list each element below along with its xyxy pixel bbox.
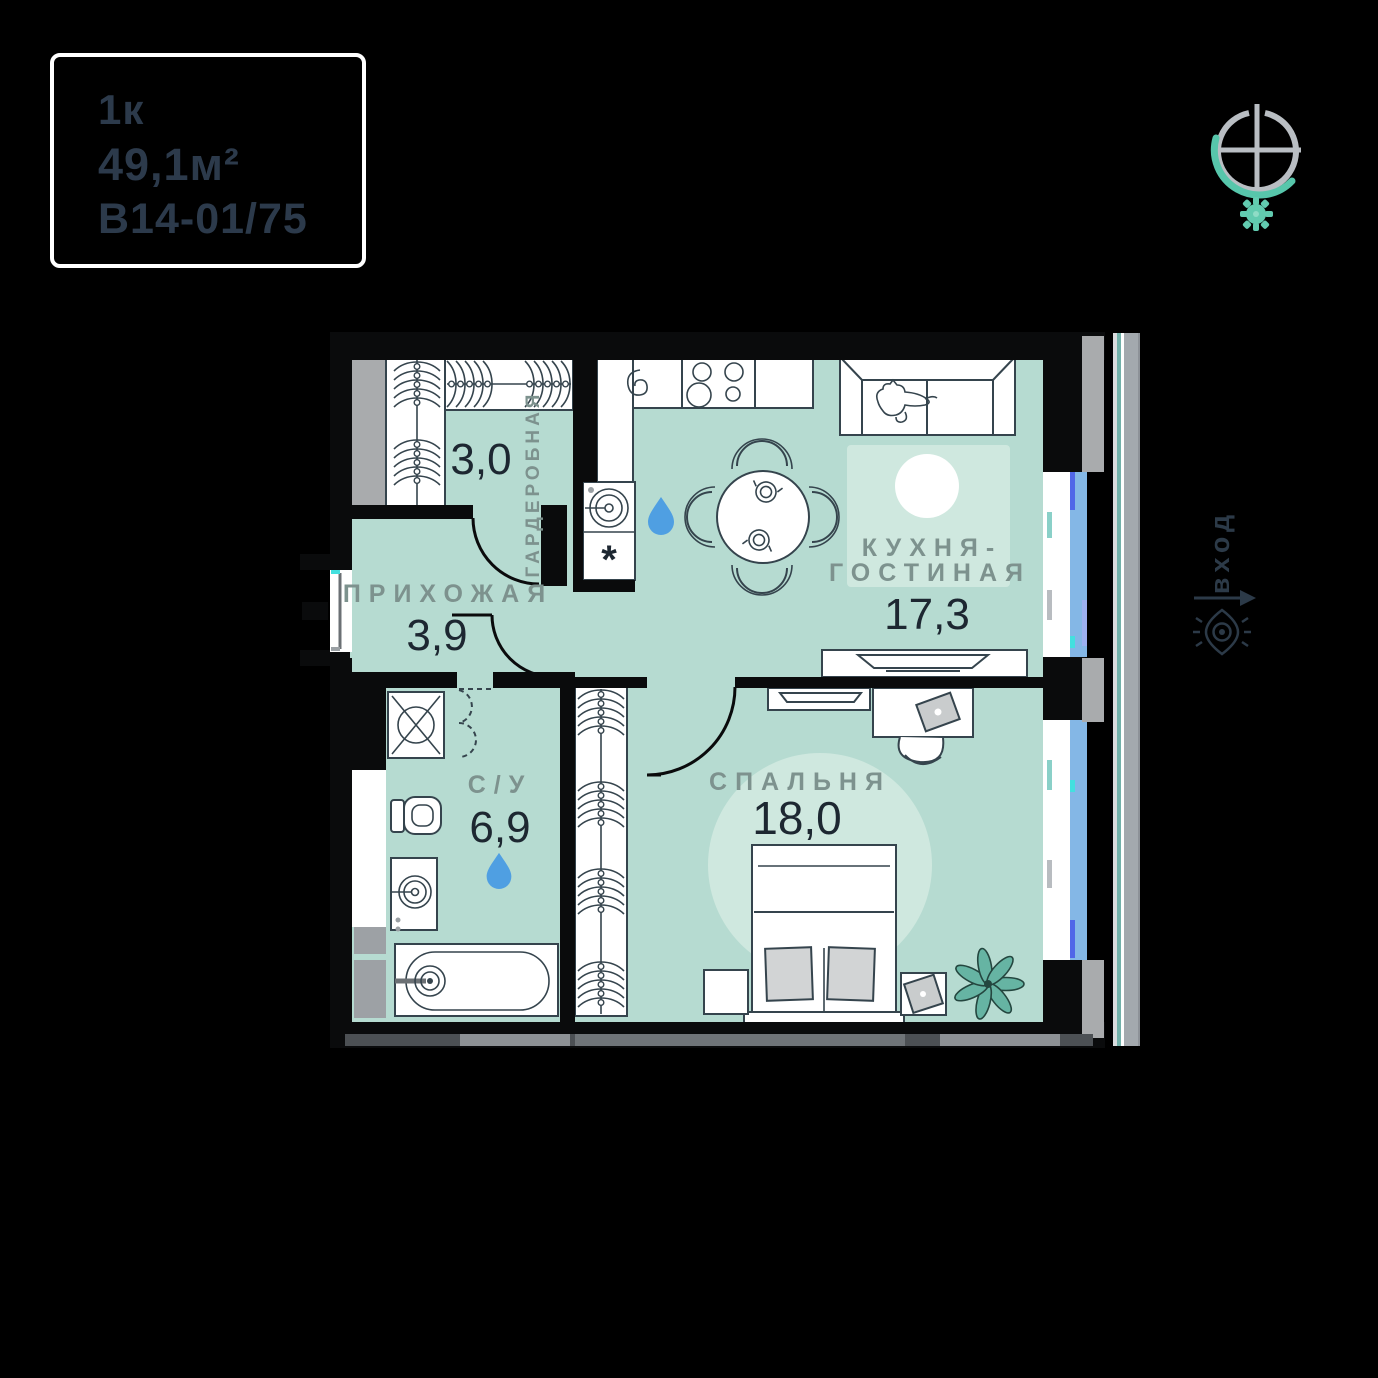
bathroom-left-column — [352, 688, 386, 1018]
floor-plan-page: 1к 49,1м² В14-01/75 — [0, 0, 1378, 1378]
washing-machine — [388, 692, 444, 758]
wardrobe-area: 3,0 — [450, 435, 511, 484]
kitchen-area: 17,3 — [884, 590, 970, 639]
bed — [744, 845, 904, 1024]
entrance-marker: вход — [1193, 510, 1256, 654]
sun-flower-icon — [1240, 197, 1273, 231]
bathtub — [395, 944, 558, 1016]
nightstand — [704, 970, 748, 1014]
bathroom-sink — [391, 858, 437, 932]
kitchen-label-2: ГОСТИНАЯ — [829, 559, 1031, 587]
floor-frame — [901, 973, 946, 1015]
pillow — [765, 947, 813, 1001]
pillow — [827, 947, 875, 1001]
dishwasher-mark: * — [601, 538, 617, 582]
bathroom-label: С/У — [468, 771, 533, 799]
entrance-label: вход — [1205, 510, 1235, 594]
sofa — [840, 357, 1015, 435]
window-kitchen — [1043, 472, 1087, 657]
brand-logo — [1213, 104, 1301, 231]
coffee-table — [895, 454, 959, 518]
wardrobe-label: ГАРДЕРОБНАЯ — [523, 391, 544, 578]
floor-plan-svg: * — [290, 40, 1378, 1060]
hallway-area: 3,9 — [406, 611, 467, 660]
window-bedroom — [1043, 720, 1087, 960]
facade-line — [1113, 333, 1140, 1046]
tv-console-bedroom — [768, 688, 870, 710]
compass-icon — [1213, 104, 1301, 195]
bottom-facade-strip — [345, 1034, 1093, 1046]
tv-console-kitchen — [822, 650, 1027, 677]
hallway-label: ПРИХОЖАЯ — [343, 580, 553, 608]
bedroom-area: 18,0 — [752, 792, 842, 844]
bathroom-area: 6,9 — [469, 803, 530, 852]
toilet — [391, 797, 441, 834]
kitchen-sink-cabinet: * — [583, 482, 635, 582]
kitchen-label-1: КУХНЯ- — [862, 534, 1002, 562]
view-eye-icon — [1193, 610, 1251, 654]
bedroom-closet — [575, 687, 627, 1016]
